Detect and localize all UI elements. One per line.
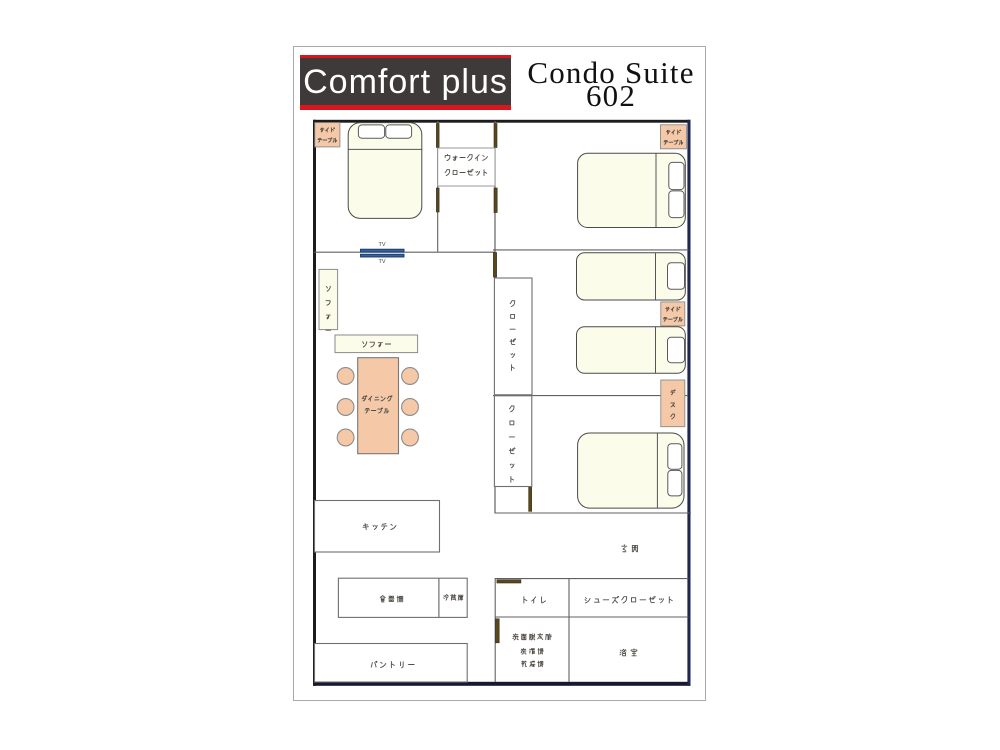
svg-text:TV: TV [378,259,385,265]
svg-text:TV: TV [378,242,385,248]
